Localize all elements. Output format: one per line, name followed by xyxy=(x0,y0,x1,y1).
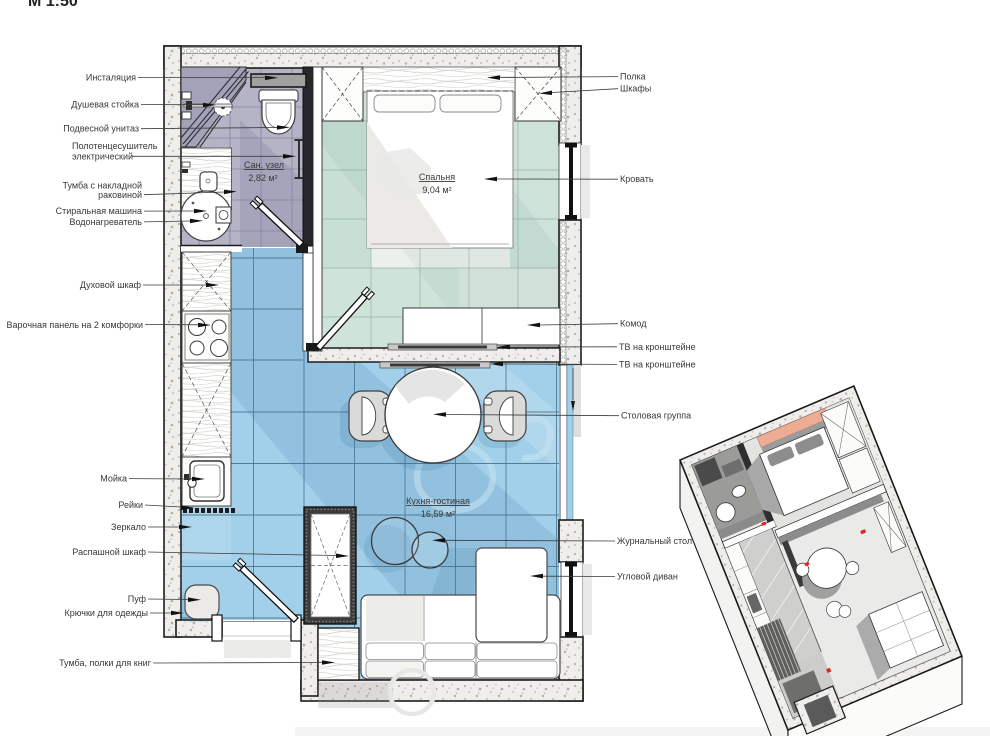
svg-text:Распашной шкаф: Распашной шкаф xyxy=(72,547,146,557)
svg-text:Подвесной унитаз: Подвесной унитаз xyxy=(63,124,139,134)
svg-text:Кухня-гостиная: Кухня-гостиная xyxy=(406,496,470,506)
svg-text:Мойка: Мойка xyxy=(100,474,127,484)
svg-text:Комод: Комод xyxy=(620,319,647,329)
svg-text:Спальня: Спальня xyxy=(419,172,455,182)
svg-text:ТВ на кронштейне: ТВ на кронштейне xyxy=(619,342,696,352)
svg-text:электрический: электрический xyxy=(72,152,133,162)
svg-text:Крючки для одежды: Крючки для одежды xyxy=(64,608,148,618)
svg-text:М 1:50: М 1:50 xyxy=(28,0,78,10)
svg-text:Тумба, полки для книг: Тумба, полки для книг xyxy=(59,658,152,668)
svg-text:Пуф: Пуф xyxy=(128,594,147,604)
svg-text:Журнальный стол: Журнальный стол xyxy=(617,536,692,546)
svg-text:16,59 м²: 16,59 м² xyxy=(421,509,455,519)
svg-text:Рейки: Рейки xyxy=(118,500,143,510)
svg-text:Тумба с накладной: Тумба с накладной xyxy=(63,181,142,191)
svg-text:Водонагреватель: Водонагреватель xyxy=(70,217,143,227)
svg-text:Зеркало: Зеркало xyxy=(111,522,146,532)
svg-text:Инсталяция: Инсталяция xyxy=(86,73,136,83)
svg-text:Варочная панель на 2 комфорки: Варочная панель на 2 комфорки xyxy=(7,320,143,330)
svg-text:Душевая стойка: Душевая стойка xyxy=(71,100,139,110)
svg-text:Стиральная машина: Стиральная машина xyxy=(56,206,142,216)
svg-text:Духовой шкаф: Духовой шкаф xyxy=(80,280,142,290)
svg-text:2,82 м²: 2,82 м² xyxy=(248,173,277,183)
svg-text:Столовая группа: Столовая группа xyxy=(621,411,691,421)
svg-text:Сан. узел: Сан. узел xyxy=(244,160,284,170)
svg-text:ТВ на кронштейне: ТВ на кронштейне xyxy=(619,359,696,369)
svg-text:Полка: Полка xyxy=(620,72,646,82)
svg-text:Полотенцесушитель: Полотенцесушитель xyxy=(72,141,158,151)
svg-text:Шкафы: Шкафы xyxy=(620,84,651,94)
svg-text:Угловой диван: Угловой диван xyxy=(617,572,678,582)
svg-text:раковиной: раковиной xyxy=(98,190,142,200)
svg-text:Кровать: Кровать xyxy=(620,174,654,184)
svg-text:9,04 м²: 9,04 м² xyxy=(422,185,451,195)
